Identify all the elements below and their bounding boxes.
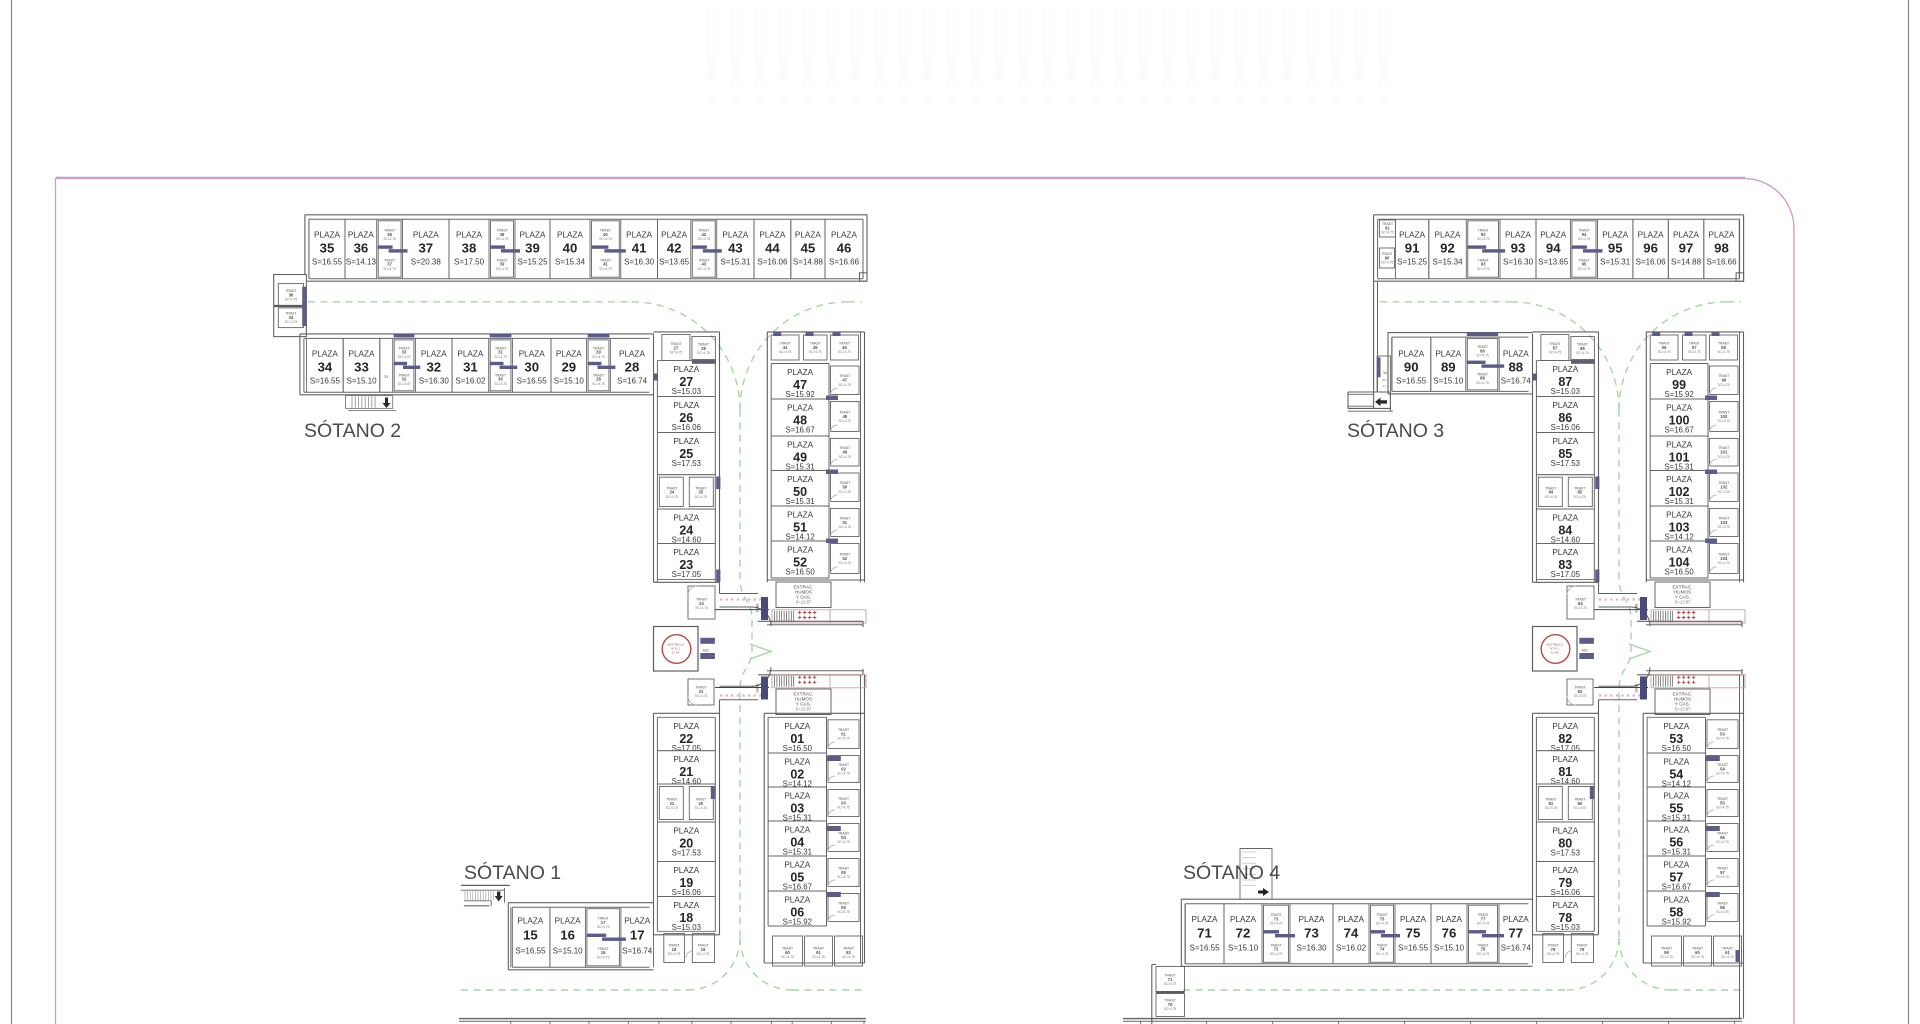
svg-text:76: 76 bbox=[1442, 926, 1457, 941]
svg-text:PLAZA: PLAZA bbox=[787, 368, 813, 377]
svg-text:SC=4.75: SC=4.75 bbox=[837, 875, 850, 879]
svg-text:SC=4.75: SC=4.75 bbox=[837, 806, 850, 810]
svg-text:SC=4.75: SC=4.75 bbox=[698, 237, 711, 241]
svg-text:SC=4.75: SC=4.75 bbox=[1718, 525, 1731, 529]
svg-text:S=16.67: S=16.67 bbox=[785, 426, 814, 435]
svg-text:S=15.03: S=15.03 bbox=[1551, 923, 1580, 932]
svg-text:PLAZA: PLAZA bbox=[1666, 475, 1692, 484]
svg-text:SC=4.75: SC=4.75 bbox=[670, 351, 683, 355]
svg-text:S=15.34: S=15.34 bbox=[1432, 258, 1463, 267]
svg-text:SC=4.75: SC=4.75 bbox=[1545, 806, 1558, 810]
svg-text:36: 36 bbox=[354, 241, 369, 256]
svg-text:PLAZA: PLAZA bbox=[673, 722, 699, 731]
svg-text:28: 28 bbox=[625, 360, 640, 375]
svg-text:PLAZA: PLAZA bbox=[795, 231, 821, 240]
svg-text:S=16.66: S=16.66 bbox=[829, 258, 860, 267]
svg-text:S=15.31: S=15.31 bbox=[785, 497, 814, 506]
svg-text:SC=4.75: SC=4.75 bbox=[1718, 561, 1731, 565]
svg-text:S=15.92: S=15.92 bbox=[785, 390, 814, 399]
svg-text:S=16.30: S=16.30 bbox=[1296, 944, 1327, 953]
svg-text:PLAZA: PLAZA bbox=[1552, 901, 1578, 910]
svg-text:PLAZA: PLAZA bbox=[784, 861, 810, 870]
svg-text:PLAZA: PLAZA bbox=[673, 901, 699, 910]
svg-text:SC=4.75: SC=4.75 bbox=[1477, 267, 1490, 271]
svg-text:PLAZA: PLAZA bbox=[1638, 231, 1664, 240]
svg-text:S=16.74: S=16.74 bbox=[1501, 944, 1532, 953]
svg-text:SC=4.75: SC=4.75 bbox=[1545, 495, 1558, 499]
svg-text:72: 72 bbox=[1236, 926, 1251, 941]
svg-text:PLAZA: PLAZA bbox=[314, 231, 340, 240]
svg-text:PLAZA: PLAZA bbox=[784, 722, 810, 731]
svg-text:37: 37 bbox=[418, 241, 433, 256]
svg-text:SC=4.75: SC=4.75 bbox=[839, 561, 852, 565]
svg-text:PLAZA: PLAZA bbox=[673, 548, 699, 557]
svg-text:S=16.02: S=16.02 bbox=[455, 377, 486, 386]
svg-text:SC=4.75: SC=4.75 bbox=[1718, 383, 1731, 387]
svg-text:PLAZA: PLAZA bbox=[673, 437, 699, 446]
svg-text:SC=4.75: SC=4.75 bbox=[1716, 875, 1729, 879]
svg-text:SC=4.75: SC=4.75 bbox=[592, 355, 605, 359]
svg-text:PLAZA: PLAZA bbox=[1663, 826, 1689, 835]
svg-text:PLAZA: PLAZA bbox=[413, 231, 439, 240]
svg-text:S=16.02: S=16.02 bbox=[1336, 944, 1367, 953]
svg-text:PLAZA: PLAZA bbox=[673, 755, 699, 764]
svg-text:S=15.10: S=15.10 bbox=[1433, 377, 1464, 386]
svg-text:S=17.05: S=17.05 bbox=[1551, 744, 1581, 753]
svg-text:S=16.50: S=16.50 bbox=[783, 744, 813, 753]
svg-text:PLAZA: PLAZA bbox=[787, 511, 813, 520]
svg-text:PLAZA: PLAZA bbox=[624, 917, 650, 926]
svg-text:PLAZA: PLAZA bbox=[1503, 915, 1529, 924]
svg-text:ASC: ASC bbox=[1582, 649, 1589, 653]
svg-text:SC=4.75: SC=4.75 bbox=[599, 267, 612, 271]
svg-text:S=16.06: S=16.06 bbox=[672, 423, 701, 432]
svg-text:S=16.30: S=16.30 bbox=[419, 377, 450, 386]
svg-text:S=16.74: S=16.74 bbox=[617, 377, 648, 386]
svg-text:SC=4.75: SC=4.75 bbox=[1576, 351, 1589, 355]
svg-text:PLAZA: PLAZA bbox=[1435, 350, 1461, 359]
svg-text:S=16.06: S=16.06 bbox=[672, 888, 701, 897]
svg-text:16: 16 bbox=[560, 928, 575, 943]
svg-text:S=16.55: S=16.55 bbox=[310, 377, 341, 386]
svg-text:SC=4.75: SC=4.75 bbox=[837, 840, 850, 844]
svg-text:SUBE: SUBE bbox=[1635, 683, 1639, 693]
svg-text:S=14.60: S=14.60 bbox=[1551, 777, 1581, 786]
svg-text:SC=4.75: SC=4.75 bbox=[1574, 694, 1587, 698]
svg-text:PLAZA: PLAZA bbox=[1192, 915, 1218, 924]
svg-text:SC=4.75: SC=4.75 bbox=[1164, 982, 1177, 986]
svg-text:S=15.31: S=15.31 bbox=[1662, 848, 1691, 857]
svg-text:34: 34 bbox=[318, 360, 333, 375]
svg-text:S=16.55: S=16.55 bbox=[312, 258, 343, 267]
svg-text:SC=4.75: SC=4.75 bbox=[1576, 952, 1589, 956]
svg-text:91: 91 bbox=[1405, 241, 1420, 256]
svg-text:SC=4.75: SC=4.75 bbox=[839, 383, 852, 387]
svg-text:40: 40 bbox=[563, 241, 578, 256]
svg-text:PLAZA: PLAZA bbox=[348, 231, 374, 240]
svg-text:S=15.25: S=15.25 bbox=[517, 258, 548, 267]
svg-text:SÓTANO 1: SÓTANO 1 bbox=[464, 861, 561, 884]
svg-text:SC=4.75: SC=4.75 bbox=[837, 772, 850, 776]
svg-text:SC=4.75: SC=4.75 bbox=[1574, 606, 1587, 610]
svg-text:SC=4.75: SC=4.75 bbox=[1578, 267, 1591, 271]
svg-text:SC=4.75: SC=4.75 bbox=[1716, 772, 1729, 776]
svg-text:PLAZA: PLAZA bbox=[1436, 915, 1462, 924]
svg-text:PLAZA: PLAZA bbox=[787, 475, 813, 484]
svg-text:S=16.67: S=16.67 bbox=[1664, 426, 1693, 435]
svg-text:PLAZA: PLAZA bbox=[673, 401, 699, 410]
svg-text:95: 95 bbox=[1608, 241, 1623, 256]
svg-text:PLAZA: PLAZA bbox=[784, 896, 810, 905]
svg-text:SC=4.75: SC=4.75 bbox=[839, 490, 852, 494]
svg-text:PLAZA: PLAZA bbox=[787, 404, 813, 413]
svg-text:SC=4.75: SC=4.75 bbox=[1716, 840, 1729, 844]
svg-text:4.1: 4.1 bbox=[1382, 384, 1387, 388]
svg-text:SC=4.75: SC=4.75 bbox=[494, 382, 507, 386]
svg-text:PLAZA: PLAZA bbox=[1666, 441, 1692, 450]
svg-text:S=15.34: S=15.34 bbox=[555, 258, 586, 267]
svg-text:35: 35 bbox=[320, 241, 335, 256]
svg-text:SC=4.75: SC=4.75 bbox=[1578, 237, 1591, 241]
svg-text:PLAZA: PLAZA bbox=[1552, 866, 1578, 875]
svg-text:PLAZA: PLAZA bbox=[619, 350, 645, 359]
svg-text:S=15.92: S=15.92 bbox=[1664, 390, 1693, 399]
svg-text:PLAZA: PLAZA bbox=[1663, 722, 1689, 731]
svg-text:PLAZA: PLAZA bbox=[661, 231, 687, 240]
svg-text:PLAZA: PLAZA bbox=[1400, 915, 1426, 924]
svg-text:39: 39 bbox=[525, 241, 540, 256]
svg-text:S=17.05: S=17.05 bbox=[672, 744, 702, 753]
svg-text:SÓTANO 4: SÓTANO 4 bbox=[1183, 861, 1280, 884]
svg-text:S=14.88: S=14.88 bbox=[793, 258, 824, 267]
svg-text:94: 94 bbox=[1546, 241, 1561, 256]
svg-text:S=13.87: S=13.87 bbox=[796, 600, 812, 605]
svg-text:43: 43 bbox=[728, 241, 743, 256]
svg-text:S=14.88: S=14.88 bbox=[1671, 258, 1702, 267]
svg-text:PLAZA: PLAZA bbox=[759, 231, 785, 240]
svg-text:S=14.12: S=14.12 bbox=[1664, 533, 1693, 542]
svg-text:PLAZA: PLAZA bbox=[1673, 231, 1699, 240]
svg-text:ASC: ASC bbox=[703, 649, 710, 653]
svg-text:PLAZA: PLAZA bbox=[1399, 231, 1425, 240]
svg-text:SC=4.75: SC=4.75 bbox=[285, 298, 298, 302]
svg-text:88: 88 bbox=[1508, 360, 1523, 375]
svg-text:42: 42 bbox=[667, 241, 682, 256]
svg-text:SC=4.75: SC=4.75 bbox=[1270, 952, 1283, 956]
svg-text:77: 77 bbox=[1508, 926, 1523, 941]
svg-text:SC=4.75: SC=4.75 bbox=[698, 267, 711, 271]
svg-text:SC=4.75: SC=4.75 bbox=[496, 237, 509, 241]
svg-text:S=15.10: S=15.10 bbox=[554, 377, 585, 386]
svg-text:PLAZA: PLAZA bbox=[1552, 722, 1578, 731]
svg-text:44: 44 bbox=[765, 241, 780, 256]
svg-text:SC=4.75: SC=4.75 bbox=[695, 606, 708, 610]
svg-text:S=15.25: S=15.25 bbox=[1397, 258, 1428, 267]
svg-text:S=16.55: S=16.55 bbox=[1189, 944, 1220, 953]
svg-text:SC=4.75: SC=4.75 bbox=[1658, 350, 1671, 354]
svg-text:PLAZA: PLAZA bbox=[722, 231, 748, 240]
svg-text:S=16.55: S=16.55 bbox=[515, 947, 546, 956]
svg-text:SC=4.75: SC=4.75 bbox=[1376, 922, 1389, 926]
svg-text:S=17.53: S=17.53 bbox=[1551, 849, 1580, 858]
svg-text:SC=4.75: SC=4.75 bbox=[842, 955, 855, 959]
svg-text:PLAZA: PLAZA bbox=[555, 917, 581, 926]
svg-text:SUBE: SUBE bbox=[756, 683, 760, 693]
svg-text:S=17.53: S=17.53 bbox=[1551, 459, 1580, 468]
svg-text:S=15.92: S=15.92 bbox=[1662, 918, 1691, 927]
svg-text:SC=4.75: SC=4.75 bbox=[837, 910, 850, 914]
svg-text:74: 74 bbox=[1344, 926, 1359, 941]
svg-text:PLAZA: PLAZA bbox=[1552, 401, 1578, 410]
svg-text:PLAZA: PLAZA bbox=[1505, 231, 1531, 240]
svg-text:S=13.65: S=13.65 bbox=[1538, 258, 1569, 267]
svg-text:SC=4.75: SC=4.75 bbox=[1688, 350, 1701, 354]
svg-text:SC=4.75: SC=4.75 bbox=[839, 455, 852, 459]
svg-text:S=16.55: S=16.55 bbox=[1396, 377, 1427, 386]
svg-text:46: 46 bbox=[837, 241, 852, 256]
svg-text:S=15.03: S=15.03 bbox=[672, 387, 701, 396]
svg-text:12 M²: 12 M² bbox=[1551, 651, 1559, 655]
svg-text:SC=4.75: SC=4.75 bbox=[1716, 806, 1729, 810]
svg-text:PLAZA: PLAZA bbox=[1230, 915, 1256, 924]
svg-text:S=17.05: S=17.05 bbox=[1551, 570, 1581, 579]
svg-text:30: 30 bbox=[524, 360, 539, 375]
svg-text:S=16.50: S=16.50 bbox=[1662, 744, 1692, 753]
svg-text:SC=4.75: SC=4.75 bbox=[1547, 952, 1560, 956]
svg-text:41: 41 bbox=[632, 241, 647, 256]
svg-text:PLAZA: PLAZA bbox=[784, 826, 810, 835]
svg-text:71: 71 bbox=[1197, 926, 1212, 941]
svg-text:SC=4.75: SC=4.75 bbox=[1721, 955, 1734, 959]
svg-text:SC=4.75: SC=4.75 bbox=[666, 806, 679, 810]
svg-text:32: 32 bbox=[426, 360, 441, 375]
svg-text:PLAZA: PLAZA bbox=[1503, 350, 1529, 359]
svg-text:S=15.10: S=15.10 bbox=[553, 947, 584, 956]
svg-text:SC=4.75: SC=4.75 bbox=[812, 955, 825, 959]
svg-text:PLAZA: PLAZA bbox=[557, 231, 583, 240]
svg-text:PLAZA: PLAZA bbox=[784, 758, 810, 767]
svg-text:PLAZA: PLAZA bbox=[421, 350, 447, 359]
svg-text:SC=4.75: SC=4.75 bbox=[383, 267, 396, 271]
svg-text:SC=4.75: SC=4.75 bbox=[599, 237, 612, 241]
svg-text:S=13.87: S=13.87 bbox=[1675, 600, 1691, 605]
svg-text:15: 15 bbox=[523, 928, 538, 943]
svg-text:PLAZA: PLAZA bbox=[1552, 514, 1578, 523]
svg-text:SC=4.75: SC=4.75 bbox=[1716, 910, 1729, 914]
svg-text:92: 92 bbox=[1440, 241, 1455, 256]
svg-text:S=16.06: S=16.06 bbox=[1551, 423, 1580, 432]
svg-text:S=15.31: S=15.31 bbox=[1600, 258, 1631, 267]
svg-text:SC=4.75: SC=4.75 bbox=[1476, 354, 1489, 358]
svg-text:PLAZA: PLAZA bbox=[556, 350, 582, 359]
svg-text:S=16.66: S=16.66 bbox=[1706, 258, 1737, 267]
svg-text:S=16.50: S=16.50 bbox=[1664, 568, 1694, 577]
svg-text:S=20.38: S=20.38 bbox=[411, 258, 442, 267]
svg-text:PLAZA: PLAZA bbox=[1663, 792, 1689, 801]
svg-text:89: 89 bbox=[1441, 360, 1456, 375]
svg-text:SC=4.75: SC=4.75 bbox=[592, 382, 605, 386]
svg-text:SC=4.75: SC=4.75 bbox=[1270, 922, 1283, 926]
svg-text:PLAZA: PLAZA bbox=[1663, 861, 1689, 870]
svg-text:SC=4.75: SC=4.75 bbox=[838, 350, 851, 354]
svg-text:PLAZA: PLAZA bbox=[1338, 915, 1364, 924]
svg-text:PLAZA: PLAZA bbox=[673, 827, 699, 836]
svg-text:SC=4.75: SC=4.75 bbox=[1718, 490, 1731, 494]
svg-text:SC=4.75: SC=4.75 bbox=[839, 525, 852, 529]
svg-text:SC=4.75: SC=4.75 bbox=[1476, 381, 1489, 385]
svg-text:PLAZA: PLAZA bbox=[520, 231, 546, 240]
svg-text:SC=4.75: SC=4.75 bbox=[1574, 495, 1587, 499]
svg-text:S=15.31: S=15.31 bbox=[1664, 497, 1693, 506]
svg-text:SC=4.75: SC=4.75 bbox=[1718, 419, 1731, 423]
svg-text:PLAZA: PLAZA bbox=[831, 231, 857, 240]
svg-text:SUBE: SUBE bbox=[756, 603, 760, 613]
svg-text:PLAZA: PLAZA bbox=[1398, 350, 1424, 359]
svg-text:PLAZA: PLAZA bbox=[519, 350, 545, 359]
svg-text:S=16.55: S=16.55 bbox=[1398, 944, 1429, 953]
svg-text:S=14.12: S=14.12 bbox=[785, 533, 814, 542]
svg-text:SC=4.75: SC=4.75 bbox=[697, 351, 710, 355]
svg-text:S=15.10: S=15.10 bbox=[346, 377, 377, 386]
svg-text:SC=4.75: SC=4.75 bbox=[1477, 952, 1490, 956]
svg-text:SC=4.75: SC=4.75 bbox=[781, 955, 794, 959]
svg-text:PLAZA: PLAZA bbox=[787, 546, 813, 555]
svg-text:PLAZA: PLAZA bbox=[1709, 231, 1735, 240]
svg-text:SC=4.75: SC=4.75 bbox=[597, 925, 610, 929]
svg-text:SC=4.75: SC=4.75 bbox=[666, 495, 679, 499]
svg-text:PLAZA: PLAZA bbox=[673, 866, 699, 875]
svg-text:31: 31 bbox=[463, 360, 478, 375]
svg-text:17: 17 bbox=[630, 928, 645, 943]
svg-text:SC=4.75: SC=4.75 bbox=[597, 955, 610, 959]
svg-text:96: 96 bbox=[1643, 241, 1658, 256]
svg-text:S=16.30: S=16.30 bbox=[624, 258, 655, 267]
svg-text:PLAZA: PLAZA bbox=[1552, 437, 1578, 446]
svg-text:S=14.13: S=14.13 bbox=[346, 258, 377, 267]
svg-text:SC=4.75: SC=4.75 bbox=[494, 355, 507, 359]
svg-text:SC=4.75: SC=4.75 bbox=[1717, 350, 1730, 354]
svg-text:SC=4.75: SC=4.75 bbox=[383, 237, 396, 241]
svg-text:S=15.92: S=15.92 bbox=[783, 918, 812, 927]
svg-text:S=14.60: S=14.60 bbox=[672, 777, 702, 786]
svg-text:SC=4.75: SC=4.75 bbox=[1549, 351, 1562, 355]
svg-text:S=16.06: S=16.06 bbox=[757, 258, 788, 267]
svg-text:S=17.53: S=17.53 bbox=[672, 459, 701, 468]
svg-text:PLAZA: PLAZA bbox=[457, 350, 483, 359]
svg-text:S=16.06: S=16.06 bbox=[1636, 258, 1667, 267]
svg-text:PLAZA: PLAZA bbox=[456, 231, 482, 240]
svg-text:PLAZA: PLAZA bbox=[1540, 231, 1566, 240]
svg-text:PLAZA: PLAZA bbox=[1663, 758, 1689, 767]
svg-text:SC=4.75: SC=4.75 bbox=[695, 495, 708, 499]
svg-text:PLAZA: PLAZA bbox=[1663, 896, 1689, 905]
svg-text:PLAZA: PLAZA bbox=[1602, 231, 1628, 240]
svg-text:SUBE: SUBE bbox=[1635, 603, 1639, 613]
svg-text:S=17.53: S=17.53 bbox=[672, 849, 701, 858]
svg-text:SC=4.75: SC=4.75 bbox=[398, 355, 411, 359]
svg-text:PLAZA: PLAZA bbox=[1666, 404, 1692, 413]
svg-text:PLAZA: PLAZA bbox=[517, 917, 543, 926]
svg-text:SÓTANO 3: SÓTANO 3 bbox=[1347, 419, 1444, 442]
svg-text:12 M²: 12 M² bbox=[672, 651, 680, 655]
svg-text:S=15.31: S=15.31 bbox=[720, 258, 751, 267]
svg-text:PLAZA: PLAZA bbox=[1299, 915, 1325, 924]
svg-text:S=16.74: S=16.74 bbox=[1501, 377, 1532, 386]
svg-text:SC=4.75: SC=4.75 bbox=[839, 419, 852, 423]
svg-text:S=16.50: S=16.50 bbox=[785, 568, 815, 577]
svg-text:73: 73 bbox=[1304, 926, 1319, 941]
svg-text:SC=4.75: SC=4.75 bbox=[697, 952, 710, 956]
svg-text:S=16.06: S=16.06 bbox=[1551, 888, 1580, 897]
svg-text:PLAZA: PLAZA bbox=[312, 350, 338, 359]
svg-text:SC=4.75: SC=4.75 bbox=[779, 350, 792, 354]
svg-text:PLAZA: PLAZA bbox=[1435, 231, 1461, 240]
svg-text:PLAZA: PLAZA bbox=[1552, 548, 1578, 557]
svg-text:S=15.03: S=15.03 bbox=[1551, 387, 1580, 396]
svg-text:S=17.50: S=17.50 bbox=[454, 258, 485, 267]
svg-text:SC=4.75: SC=4.75 bbox=[837, 737, 850, 741]
svg-text:S=17.05: S=17.05 bbox=[672, 570, 702, 579]
svg-text:SÓTANO 2: SÓTANO 2 bbox=[304, 419, 401, 442]
svg-text:PLAZA: PLAZA bbox=[784, 792, 810, 801]
svg-text:SC=4.75: SC=4.75 bbox=[1376, 952, 1389, 956]
svg-text:45: 45 bbox=[801, 241, 816, 256]
svg-text:S=16.67: S=16.67 bbox=[1662, 883, 1691, 892]
svg-text:SC=4.75: SC=4.75 bbox=[1477, 922, 1490, 926]
svg-text:S=15.10: S=15.10 bbox=[1228, 944, 1259, 953]
svg-text:S=13.87: S=13.87 bbox=[1675, 707, 1691, 712]
svg-text:SC=4.75: SC=4.75 bbox=[1477, 237, 1490, 241]
svg-text:SC=4.75: SC=4.75 bbox=[1716, 737, 1729, 741]
svg-text:SC=4.75: SC=4.75 bbox=[695, 694, 708, 698]
svg-text:S=15.31: S=15.31 bbox=[783, 848, 812, 857]
svg-text:PLAZA: PLAZA bbox=[1552, 755, 1578, 764]
svg-text:SC=4.75: SC=4.75 bbox=[1574, 806, 1587, 810]
svg-text:PLAZA: PLAZA bbox=[673, 365, 699, 374]
svg-text:S=15.10: S=15.10 bbox=[1434, 944, 1465, 953]
svg-text:S=13.87: S=13.87 bbox=[796, 707, 812, 712]
svg-text:90: 90 bbox=[1404, 360, 1419, 375]
svg-text:S=16.67: S=16.67 bbox=[783, 883, 812, 892]
svg-text:SC=4.75: SC=4.75 bbox=[1691, 955, 1704, 959]
svg-text:33: 33 bbox=[384, 375, 388, 379]
svg-text:S=16.30: S=16.30 bbox=[1503, 258, 1534, 267]
svg-text:PLAZA: PLAZA bbox=[1666, 511, 1692, 520]
svg-text:S=16.74: S=16.74 bbox=[622, 947, 653, 956]
svg-text:PLAZA: PLAZA bbox=[1666, 546, 1692, 555]
svg-text:97: 97 bbox=[1679, 241, 1694, 256]
svg-text:SC=4.75: SC=4.75 bbox=[668, 952, 681, 956]
svg-text:98: 98 bbox=[1714, 241, 1729, 256]
svg-text:29: 29 bbox=[561, 360, 576, 375]
svg-text:SC=4.75: SC=4.75 bbox=[1660, 955, 1673, 959]
svg-text:PLAZA: PLAZA bbox=[1666, 368, 1692, 377]
svg-text:SC=4.75: SC=4.75 bbox=[1381, 231, 1394, 235]
svg-text:S=16.55: S=16.55 bbox=[517, 377, 548, 386]
svg-text:SC=4.75: SC=4.75 bbox=[398, 382, 411, 386]
svg-text:75: 75 bbox=[1406, 926, 1421, 941]
svg-text:SC=4.75: SC=4.75 bbox=[695, 806, 708, 810]
svg-text:38: 38 bbox=[462, 241, 477, 256]
svg-text:S=13.65: S=13.65 bbox=[659, 258, 690, 267]
svg-text:PLAZA: PLAZA bbox=[787, 441, 813, 450]
svg-text:PLAZA: PLAZA bbox=[349, 350, 375, 359]
svg-text:PLAZA: PLAZA bbox=[626, 231, 652, 240]
svg-text:PLAZA: PLAZA bbox=[1552, 365, 1578, 374]
svg-text:SC=4.75: SC=4.75 bbox=[809, 350, 822, 354]
svg-text:SC=4.75: SC=4.75 bbox=[496, 267, 509, 271]
svg-text:SC=4.75: SC=4.75 bbox=[1718, 455, 1731, 459]
